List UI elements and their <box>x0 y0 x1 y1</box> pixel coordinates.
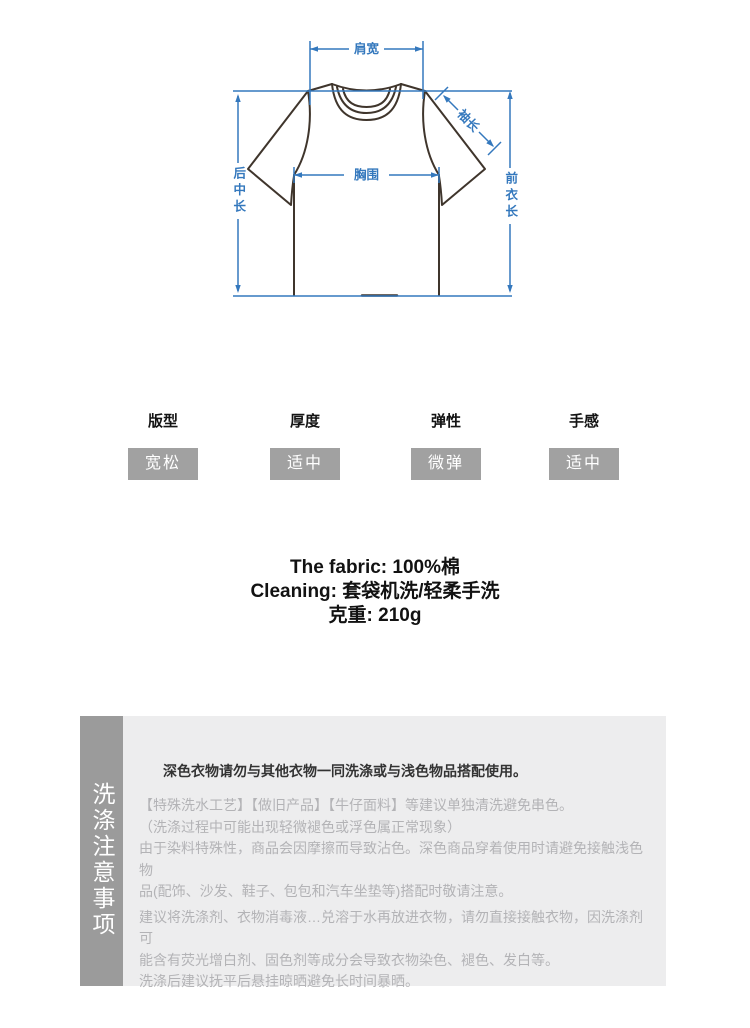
care-paragraph-1: 【特殊洗水工艺】【做旧产品】【牛仔面料】等建议单独清洗避免串色。 （洗涤过程中可… <box>139 795 648 903</box>
care-sidebar: 洗涤注意事项 <box>80 716 123 986</box>
tshirt-outline <box>248 84 485 296</box>
care-paragraph-2: 建议将洗涤剂、衣物消毒液…兑溶于水再放进衣物，请勿直接接触衣物，因洗涤剂可 能含… <box>139 907 648 993</box>
cleaning-line: Cleaning: 套袋机洗/轻柔手洗 <box>0 580 750 604</box>
attribute-value-badge: 适中 <box>270 448 340 480</box>
care-text-line: （洗涤过程中可能出现轻微褪色或浮色属正常现象） <box>139 817 648 839</box>
back-length-label: 后中长 <box>232 166 245 216</box>
product-attributes: 版型 宽松 厚度 适中 弹性 微弹 手感 适中 <box>0 413 750 488</box>
attribute-label: 手感 <box>524 413 644 431</box>
attribute-thickness: 厚度 适中 <box>245 413 365 480</box>
washing-care-section: 洗涤注意事项 深色衣物请勿与其他衣物一同洗涤或与浅色物品搭配使用。 【特殊洗水工… <box>80 716 666 986</box>
care-text-line: 由于染料特殊性，商品会因摩擦而导致沾色。深色商品穿着使用时请避免接触浅色物 <box>139 838 648 881</box>
care-text-line: 【特殊洗水工艺】【做旧产品】【牛仔面料】等建议单独清洗避免串色。 <box>139 795 648 817</box>
attribute-label: 版型 <box>103 413 223 431</box>
front-length-label: 前衣长 <box>504 171 517 221</box>
care-heading: 深色衣物请勿与其他衣物一同洗涤或与浅色物品搭配使用。 <box>163 761 648 781</box>
attribute-feel: 手感 适中 <box>524 413 644 480</box>
shoulder-width-label: 肩宽 <box>354 43 379 56</box>
attribute-value-badge: 宽松 <box>128 448 198 480</box>
size-measurement-diagram: 肩宽 胸围 袖长 后中长 前衣长 <box>215 25 515 320</box>
attribute-label: 弹性 <box>386 413 506 431</box>
attribute-fit: 版型 宽松 <box>103 413 223 480</box>
chest-width-label: 胸围 <box>354 169 379 182</box>
care-text-line: 洗涤后建议抚平后悬挂晾晒避免长时间暴晒。 <box>139 971 648 993</box>
care-content-panel: 深色衣物请勿与其他衣物一同洗涤或与浅色物品搭配使用。 【特殊洗水工艺】【做旧产品… <box>123 716 666 986</box>
care-sidebar-title: 洗涤注意事项 <box>80 782 123 986</box>
attribute-value-badge: 微弹 <box>411 448 481 480</box>
fabric-line: The fabric: 100%棉 <box>0 556 750 580</box>
attribute-value-badge: 适中 <box>549 448 619 480</box>
attribute-label: 厚度 <box>245 413 365 431</box>
care-text-line: 能含有荧光增白剂、固色剂等成分会导致衣物染色、褪色、发白等。 <box>139 950 648 972</box>
care-text-line: 品(配饰、沙发、鞋子、包包和汽车坐垫等)搭配时敬请注意。 <box>139 881 648 903</box>
care-text-line: 建议将洗涤剂、衣物消毒液…兑溶于水再放进衣物，请勿直接接触衣物，因洗涤剂可 <box>139 907 648 950</box>
attribute-elasticity: 弹性 微弹 <box>386 413 506 480</box>
product-detail-page: { "diagram": { "labels": { "shoulder": "… <box>0 0 750 1028</box>
fabric-info: The fabric: 100%棉 Cleaning: 套袋机洗/轻柔手洗 克重… <box>0 556 750 628</box>
weight-line: 克重: 210g <box>0 604 750 628</box>
